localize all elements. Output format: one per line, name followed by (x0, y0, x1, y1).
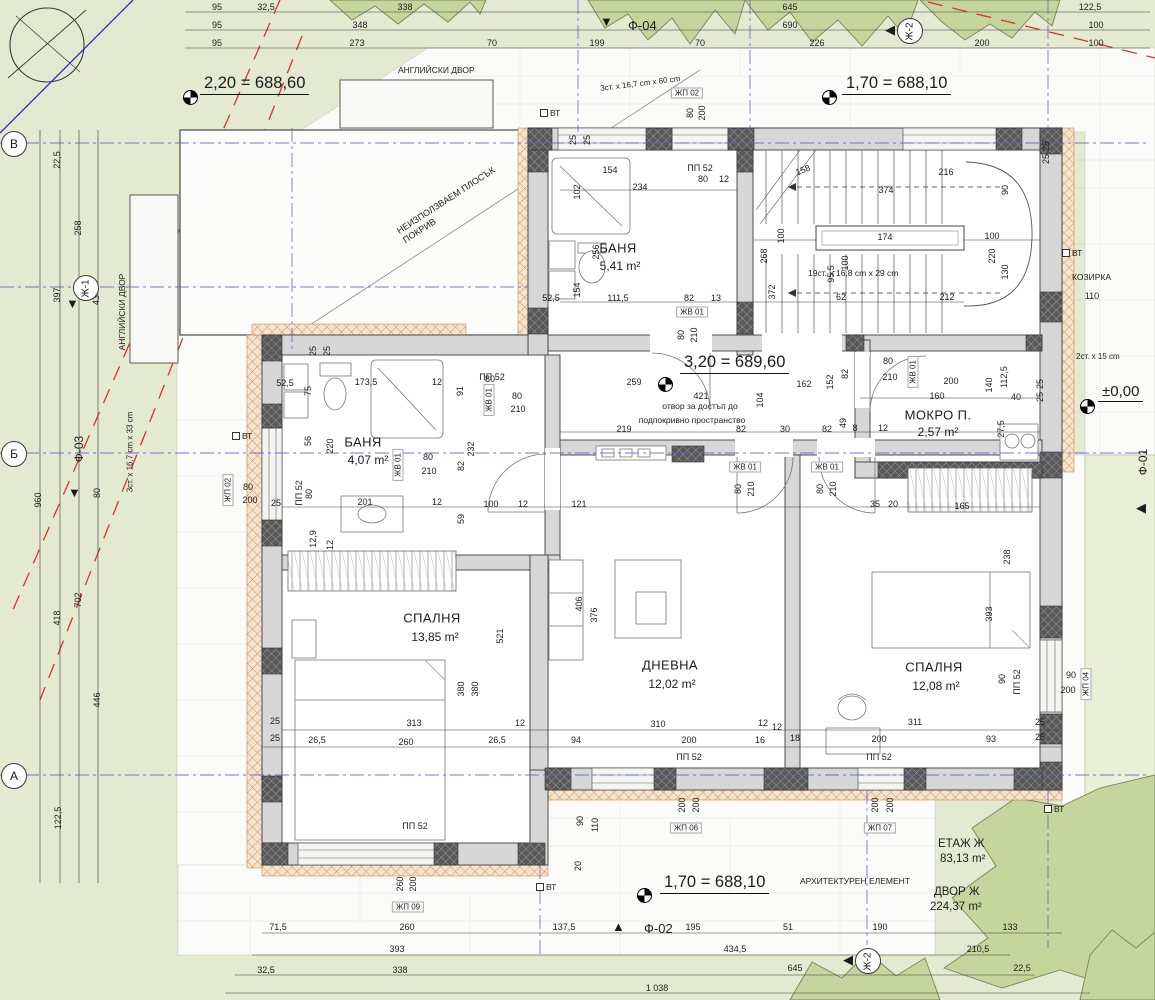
dim-label: 162 (796, 379, 811, 389)
dim-label: 70 (487, 38, 497, 48)
benchmark-icon (658, 377, 673, 392)
window-tag: ЖП 02 (671, 88, 703, 99)
dim-label: 702 (73, 592, 83, 607)
dim-label: 521 (495, 628, 505, 643)
english-yard-label: АНГЛИЙСКИ ДВОР (398, 65, 475, 75)
elevation-mark: 1,70 = 688,10 (842, 74, 951, 95)
dim-label: 25 (1035, 717, 1045, 727)
dim-label-total: 1 038 (646, 983, 669, 993)
grid-label: А (10, 769, 18, 783)
dim-label: 95 (212, 20, 222, 30)
dim-label: 12 (432, 377, 442, 387)
dim-label: 100 (984, 231, 999, 241)
elevation-mark: ±0,00 (1098, 383, 1143, 402)
yard-area-value: 224,37 m² (930, 901, 982, 913)
room-name: БАНЯ (599, 241, 636, 256)
dim-label: 82 (840, 369, 850, 379)
dim-label: 173,5 (355, 377, 378, 387)
tag-size: 210 (421, 466, 436, 476)
dim-label: 27,5 (996, 420, 1006, 438)
grid-bubble-a: А (1, 763, 27, 789)
dim-label: 232 (466, 441, 476, 456)
attic-access-note-2: подпокривно пространство (639, 415, 746, 425)
dim-label: 95 (212, 2, 222, 12)
dim-label: 234 (632, 182, 647, 192)
dim-label: 100 (776, 228, 786, 243)
dim-label: 122,5 (53, 807, 63, 830)
dim-label: 59 (456, 514, 466, 524)
dim-label: 30 (780, 424, 790, 434)
dim-label: 25 (1041, 141, 1051, 151)
dim-label: 380 (470, 681, 480, 696)
dim-label: 130 (1000, 264, 1010, 279)
facade-marker-f01: Ф-01 (1136, 449, 1150, 475)
dim-label: 100 (840, 255, 850, 270)
dim-label: 56 (303, 436, 313, 446)
facade-triangle: ◀ (1136, 500, 1146, 516)
dim-label: 210,5 (967, 944, 990, 954)
dim-label: 260 (398, 737, 413, 747)
dim-label: 95 (212, 38, 222, 48)
dim-label: 22,5 (52, 151, 62, 169)
dim-label: 62 (836, 292, 846, 302)
dim-label: 158 (794, 163, 812, 178)
benchmark-icon (822, 90, 837, 105)
dim-label: 25 (582, 135, 592, 145)
tag-size: 260 (395, 876, 405, 891)
dim-label: 12 (515, 718, 525, 728)
dim-label: 238 (1002, 549, 1012, 564)
dim-label: 82 (736, 424, 746, 434)
stair-note-right: 2ст. x 15 cm (1076, 352, 1120, 361)
tag-size: 210 (882, 372, 897, 382)
dim-label: 12 (878, 423, 888, 433)
sill-tag: ПП 52 (402, 821, 427, 831)
dim-label: 200 (974, 38, 989, 48)
facade-triangle: ▼ (600, 14, 613, 29)
dim-label: 338 (397, 2, 412, 12)
stair-note-main: 19ст. x 16,8 cm x 29 cm (808, 268, 898, 278)
dim-label: 258 (73, 220, 83, 235)
dim-label: 645 (782, 2, 797, 12)
dim-label: 348 (352, 20, 367, 30)
dim-label: 154 (602, 165, 617, 175)
door-tag: ЖВ 01 (484, 384, 495, 416)
dim-label: 18 (790, 733, 800, 743)
dim-label: 82 (684, 293, 694, 303)
window-tag: ЖП 04 (1081, 668, 1092, 700)
dim-label: 25 (270, 716, 280, 726)
dim-label: 80 (92, 488, 102, 498)
dim-label: 16 (755, 735, 765, 745)
vt-marker: ВТ (536, 882, 556, 892)
dim-label: 100 (1088, 38, 1103, 48)
attic-access-note-1: отвор за достъп до (662, 401, 737, 411)
tag-size: 80 (698, 174, 708, 184)
room-area: 12,02 m² (648, 677, 695, 691)
grid-bubble-j2-bottom: Ж-2 (855, 948, 881, 974)
dim-label: 110 (1085, 291, 1099, 301)
dim-label: 12 (325, 540, 335, 550)
dim-label: 51 (783, 922, 793, 932)
room-name: БАНЯ (344, 435, 381, 450)
tag-size: 200 (885, 797, 895, 812)
dim-label: 25 (270, 733, 280, 743)
tag-size: 200 (870, 797, 880, 812)
dim-label: 260 (399, 922, 414, 932)
dim-label: 40 (1011, 392, 1021, 402)
stair-note-left: 3ст. x 16,7 cm x 33 cm (126, 412, 135, 493)
dim-label: 219 (616, 424, 631, 434)
dim-label: 12 (432, 497, 442, 507)
tag-size: 200 (691, 797, 701, 812)
window-tag: ЖП 06 (670, 823, 702, 834)
vt-marker: ВТ (1062, 248, 1082, 258)
dim-label: 220 (987, 248, 997, 263)
grid-bubble-j2-top: Ж-2 (897, 18, 923, 44)
benchmark-icon (637, 888, 652, 903)
dim-label: 22,5 (1013, 963, 1031, 973)
vt-marker: ВТ (1044, 804, 1064, 814)
dim-label: 645 (787, 963, 802, 973)
tag-size: 80 (815, 484, 825, 494)
dim-label: 310 (650, 719, 665, 729)
dim-label: 82 (822, 424, 832, 434)
dim-label: 95,5 (826, 265, 836, 283)
dim-label: 25 (1035, 392, 1045, 402)
tag-size: 80 (423, 452, 433, 462)
tag-size: 12 (719, 174, 729, 184)
facade-marker-f02: Ф-02 (644, 921, 673, 936)
room-area: 13,85 m² (411, 630, 458, 644)
dim-label: 32,5 (257, 2, 275, 12)
dim-label: 133 (1002, 922, 1017, 932)
sill-tag: ПП 52 (687, 163, 712, 173)
dim-label: 376 (589, 607, 599, 622)
elevation-mark: 2,20 = 688,60 (200, 74, 309, 95)
flat-roof-note: НЕИЗПОЛЗВАЕМ ПЛОСЪКПОКРИВ (395, 227, 401, 236)
dim-label: 52,5 (542, 293, 560, 303)
facade-marker-f04: Ф-04 (628, 18, 657, 33)
dim-label: 102 (572, 184, 582, 199)
dim-label: 212 (939, 292, 954, 302)
facade-triangle: ◀ (843, 952, 853, 968)
dim-label: 25 (271, 498, 281, 508)
dim-label: 122,5 (1079, 2, 1102, 12)
dim-label: 220 (325, 438, 335, 453)
flat-roof-note-1: НЕИЗПОЛЗВАЕМ ПЛОСЪК (395, 165, 497, 237)
grid-bubble-v: В (1, 131, 27, 157)
grid-label: Б (10, 447, 18, 461)
window-tag: ЖП 02 (223, 474, 234, 506)
tag-size: 210 (689, 327, 699, 342)
door-tag: ЖВ 01 (676, 307, 708, 318)
dim-label: 140 (984, 377, 994, 392)
dim-label: 200 (871, 734, 886, 744)
sill-tag: ПП 52 (866, 752, 891, 762)
dim-label: 152 (825, 374, 835, 389)
dim-label: 12,9 (308, 530, 318, 548)
benchmark-icon (1080, 399, 1095, 414)
dim-label: 434,5 (724, 944, 747, 954)
dim-label: 199 (589, 38, 604, 48)
grid-label: Ж-2 (863, 952, 874, 970)
dim-label: 690 (782, 20, 797, 30)
dim-label: 49 (838, 418, 848, 428)
dim-label: 25 (308, 346, 318, 356)
room-name: ДНЕВНА (642, 658, 698, 673)
dim-label: 311 (908, 717, 922, 727)
dim-label: 12 (518, 499, 528, 509)
dim-label: 446 (92, 692, 102, 707)
tag-size: 80 (512, 391, 522, 401)
dim-label: 165 (954, 501, 969, 511)
dim-label: 111,5 (607, 293, 628, 303)
tag-size: 200 (242, 495, 257, 505)
dim-label: 418 (52, 610, 62, 625)
dim-label: 13 (711, 293, 721, 303)
floor-area-value: 83,13 m² (940, 853, 985, 865)
dim-label: 137,5 (553, 922, 576, 932)
vt-marker: ВТ (540, 108, 560, 118)
benchmark-icon (183, 90, 198, 105)
canopy-label: КОЗИРКА (1072, 272, 1111, 282)
dim-label: 112,5 (999, 366, 1009, 388)
dim-label: 26,5 (488, 735, 506, 745)
dim-label: 12 (772, 722, 782, 732)
dim-label: 8 (852, 423, 857, 433)
door-tag: ЖВ 01 (811, 462, 843, 473)
english-yard-label-left: АНГЛИЙСКИ ДВОР (117, 274, 127, 351)
door-tag: ЖВ 01 (393, 449, 404, 481)
room-name: СПАЛНЯ (905, 660, 962, 675)
grid-label: Ж-2 (905, 22, 916, 40)
dim-label: 397 (52, 287, 62, 302)
dim-label: 20 (573, 861, 583, 871)
grid-label: В (10, 137, 18, 151)
tag-size: 80 (733, 484, 743, 494)
grid-label: Ж-1 (81, 279, 92, 297)
door-tag: ЖВ 01 (729, 462, 761, 473)
tag-size: 80 (676, 330, 686, 340)
dim-label: 12 (758, 718, 768, 728)
dim-label: 372 (767, 284, 777, 299)
dim-label: 90 (997, 674, 1007, 684)
dim-label: 25 (1041, 154, 1051, 164)
dim-label: 35 (870, 499, 880, 509)
window-tag: ЖП 09 (392, 902, 424, 913)
dim-label: 25 (322, 346, 332, 356)
dim-label: 100 (483, 499, 498, 509)
dim-label: 195 (685, 922, 700, 932)
tag-size: 80 (883, 356, 893, 366)
dim-label: 200 (943, 376, 958, 386)
label-layer: 95 32,5 338 645 122,5 95 348 690 100 95 … (0, 0, 1155, 1000)
sill-tag: ПП 52 (676, 752, 701, 762)
stair-note-top: 3ст. x 16,7 cm x 60 cm (600, 74, 681, 93)
dim-label: 121 (571, 499, 586, 509)
dim-label: 421 (693, 391, 708, 401)
dim-label: 25 (1035, 379, 1045, 389)
yard-area-label: ДВОР Ж (934, 886, 980, 898)
dim-label: 32,5 (257, 965, 275, 975)
facade-triangle: ▼ (68, 485, 81, 500)
dim-label: 26,5 (308, 735, 326, 745)
dim-label: 256 (591, 244, 601, 259)
facade-marker-f03: Ф-03 (72, 436, 86, 462)
floor-area-label: ЕТАЖ Ж (938, 838, 984, 850)
tag-size: 210 (510, 404, 525, 414)
dim-label: 380 (456, 681, 466, 696)
dim-label: 273 (349, 38, 364, 48)
elevation-mark: 1,70 = 688,10 (660, 873, 769, 894)
dim-label: 100 (1088, 20, 1103, 30)
tag-size: 200 (1060, 685, 1075, 695)
dim-label: 393 (984, 606, 994, 621)
dim-label: 200 (681, 735, 696, 745)
dim-label: 154 (572, 282, 582, 297)
room-name: МОКРО П. (905, 408, 972, 423)
dim-label: 190 (872, 922, 887, 932)
grid-bubble-b: Б (1, 441, 27, 467)
tag-size: 200 (677, 797, 687, 812)
facade-triangle: ▼ (66, 296, 79, 311)
dim-label: 160 (929, 391, 944, 401)
tag-size: 80 (243, 482, 253, 492)
sill-tag: ПП 52 (1012, 669, 1022, 694)
dim-label: 70 (695, 38, 705, 48)
room-area: 2,57 m² (918, 425, 959, 439)
dim-label: 104 (755, 392, 765, 407)
tag-size: 210 (828, 481, 838, 496)
sill-tag: ПП 52 (294, 480, 304, 505)
dim-label: 313 (406, 718, 421, 728)
dim-label: 201 (357, 497, 372, 507)
dim-label: 393 (389, 944, 404, 954)
floor-plan-sheet: 95 32,5 338 645 122,5 95 348 690 100 95 … (0, 0, 1155, 1000)
room-area: 4,07 m² (348, 453, 389, 467)
dim-label: 52,5 (276, 378, 294, 388)
dim-label: 960 (33, 492, 43, 507)
elevation-mark: 3,20 = 689,60 (680, 353, 789, 374)
dim-label: 25 (1035, 732, 1045, 742)
dim-label: 216 (938, 167, 953, 177)
dim-label: 90 (575, 816, 585, 826)
dim-label: 82 (456, 461, 466, 471)
dim-label: 91 (455, 386, 465, 396)
tag-size: 200 (408, 876, 418, 891)
room-area: 5,41 m² (600, 259, 641, 273)
dim-label: 226 (809, 38, 824, 48)
dim-label: 268 (759, 248, 769, 263)
dim-label: 80 (304, 489, 314, 499)
facade-triangle: ▲ (612, 919, 625, 934)
dim-label: 259 (626, 377, 641, 387)
dim-label: 338 (392, 965, 407, 975)
facade-triangle: ◀ (885, 22, 895, 38)
dim-label: 374 (878, 185, 893, 195)
arch-element-label: АРХИТЕКТУРЕН ЕЛЕМЕНТ (800, 876, 910, 886)
dim-label: 25 (568, 135, 578, 145)
dim-label: 20 (888, 499, 898, 509)
window-tag: ЖП 07 (864, 823, 896, 834)
dim-label: 80 (485, 374, 495, 384)
tag-size: 90 (1066, 670, 1076, 680)
dim-label: 75 (303, 386, 313, 396)
dim-label: 71,5 (269, 922, 287, 932)
dim-label: 93 (986, 734, 996, 744)
dim-label: 406 (574, 596, 584, 611)
tag-size: 200 (697, 105, 707, 120)
room-area: 12,08 m² (912, 679, 959, 693)
vt-marker: ВТ (232, 431, 252, 441)
dim-label: 110 (590, 818, 600, 832)
door-tag: ЖВ 01 (908, 356, 919, 388)
dim-label: 90 (1000, 185, 1010, 195)
dim-label: 174 (877, 232, 892, 242)
room-name: СПАЛНЯ (403, 611, 460, 626)
tag-size: 210 (746, 481, 756, 496)
dim-label: 94 (571, 735, 581, 745)
tag-size: 80 (685, 108, 695, 118)
